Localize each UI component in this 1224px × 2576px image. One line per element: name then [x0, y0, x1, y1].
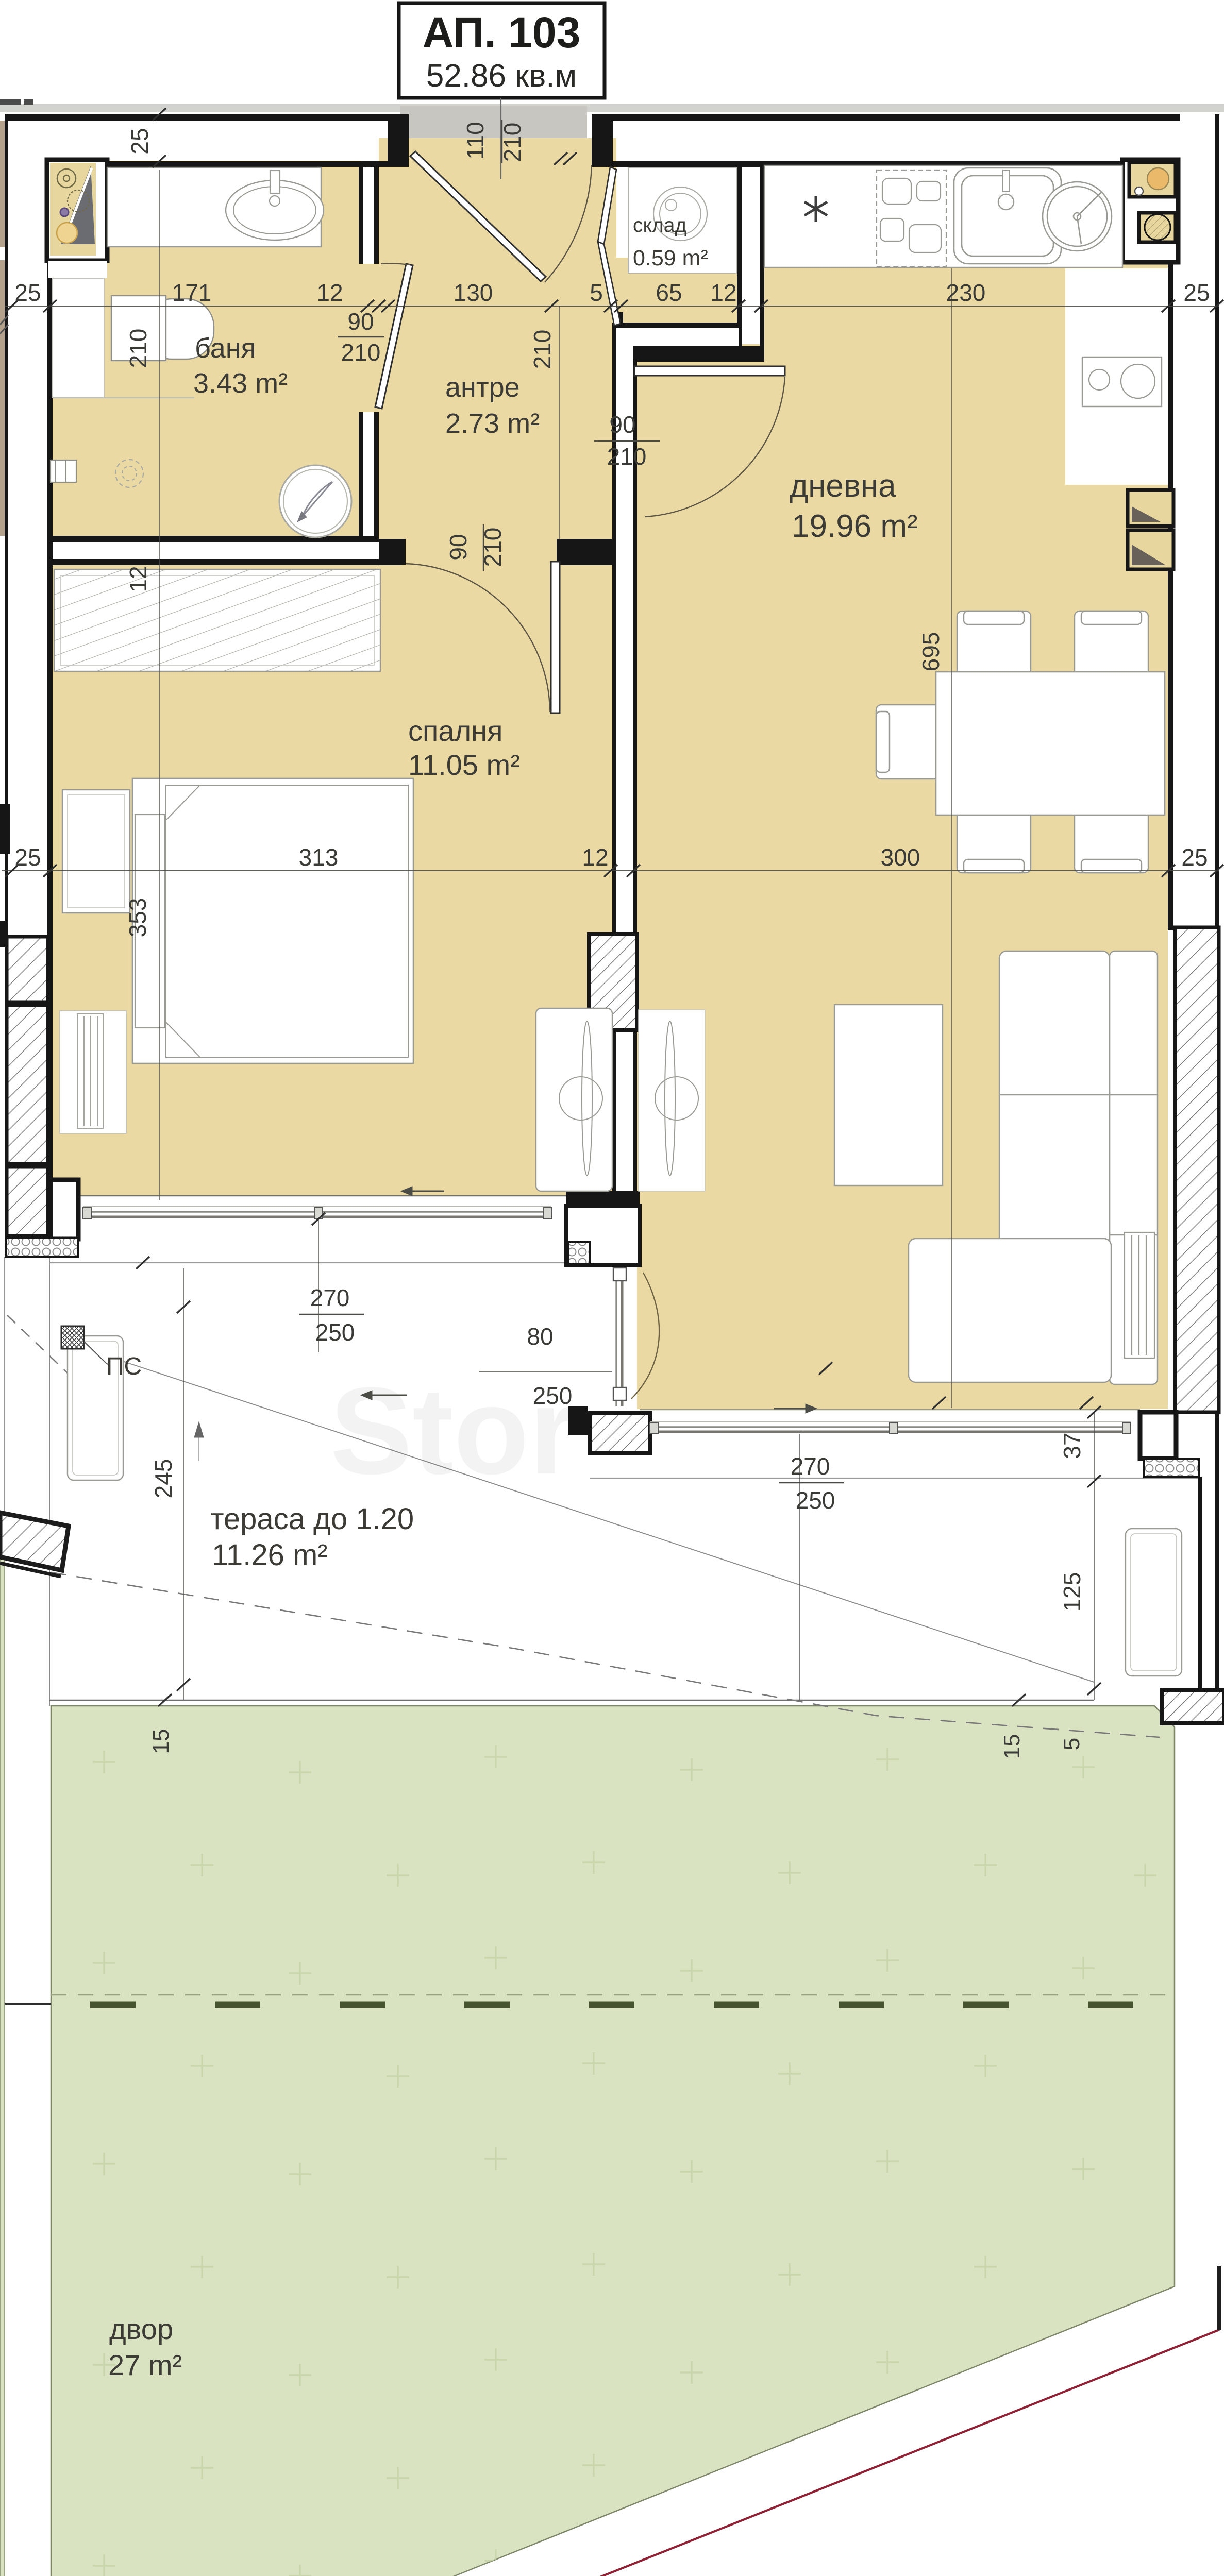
- svg-text:2.73 m²: 2.73 m²: [445, 408, 540, 439]
- svg-text:90: 90: [609, 411, 635, 438]
- svg-text:52.86 кв.м: 52.86 кв.м: [426, 58, 577, 94]
- svg-text:125: 125: [1059, 1572, 1085, 1612]
- svg-text:353: 353: [124, 898, 151, 938]
- svg-text:230: 230: [946, 279, 986, 306]
- svg-text:склад: склад: [633, 214, 686, 236]
- svg-text:250: 250: [315, 1319, 355, 1346]
- svg-text:171: 171: [172, 279, 212, 306]
- svg-text:25: 25: [1181, 844, 1208, 871]
- svg-text:3.43 m²: 3.43 m²: [193, 368, 288, 399]
- svg-text:двор: двор: [109, 2313, 173, 2345]
- svg-text:15: 15: [999, 1734, 1025, 1759]
- svg-text:5: 5: [1059, 1738, 1084, 1750]
- svg-text:12: 12: [125, 566, 152, 592]
- svg-text:11.26 m²: 11.26 m²: [212, 1538, 328, 1572]
- svg-text:27 m²: 27 m²: [108, 2349, 182, 2381]
- svg-text:25: 25: [126, 128, 153, 154]
- svg-text:12: 12: [582, 844, 608, 871]
- svg-text:АП. 103: АП. 103: [423, 8, 581, 57]
- svg-text:210: 210: [499, 123, 526, 162]
- svg-text:25: 25: [1183, 279, 1210, 306]
- svg-text:110: 110: [462, 122, 489, 159]
- svg-text:25: 25: [14, 279, 41, 306]
- svg-text:5: 5: [590, 279, 603, 306]
- svg-text:313: 313: [299, 844, 339, 871]
- svg-text:12: 12: [710, 279, 736, 306]
- svg-text:210: 210: [607, 443, 647, 470]
- svg-text:15: 15: [148, 1729, 174, 1754]
- svg-text:баня: баня: [195, 333, 256, 364]
- svg-text:270: 270: [310, 1284, 350, 1311]
- svg-text:90: 90: [445, 534, 472, 560]
- svg-text:270: 270: [791, 1453, 830, 1480]
- svg-text:37: 37: [1059, 1432, 1085, 1459]
- svg-text:210: 210: [125, 329, 152, 368]
- svg-text:695: 695: [917, 632, 944, 672]
- svg-text:дневна: дневна: [790, 468, 896, 504]
- svg-text:300: 300: [881, 844, 920, 871]
- svg-text:тераса до 1.20: тераса до 1.20: [210, 1502, 414, 1536]
- svg-text:250: 250: [533, 1382, 573, 1409]
- svg-text:130: 130: [454, 279, 493, 306]
- svg-text:245: 245: [150, 1459, 177, 1499]
- svg-text:210: 210: [341, 339, 381, 366]
- svg-text:19.96 m²: 19.96 m²: [792, 509, 918, 544]
- svg-text:11.05 m²: 11.05 m²: [408, 749, 520, 781]
- svg-text:80: 80: [527, 1323, 553, 1350]
- svg-text:ПС: ПС: [106, 1353, 142, 1380]
- svg-text:спалня: спалня: [408, 715, 502, 747]
- svg-text:65: 65: [656, 279, 682, 306]
- svg-text:25: 25: [14, 844, 41, 871]
- svg-text:210: 210: [529, 330, 556, 369]
- svg-text:12: 12: [316, 279, 343, 306]
- svg-text:250: 250: [796, 1487, 835, 1514]
- svg-text:90: 90: [347, 308, 374, 335]
- svg-text:0.59 m²: 0.59 m²: [633, 246, 708, 270]
- svg-text:антре: антре: [445, 372, 520, 403]
